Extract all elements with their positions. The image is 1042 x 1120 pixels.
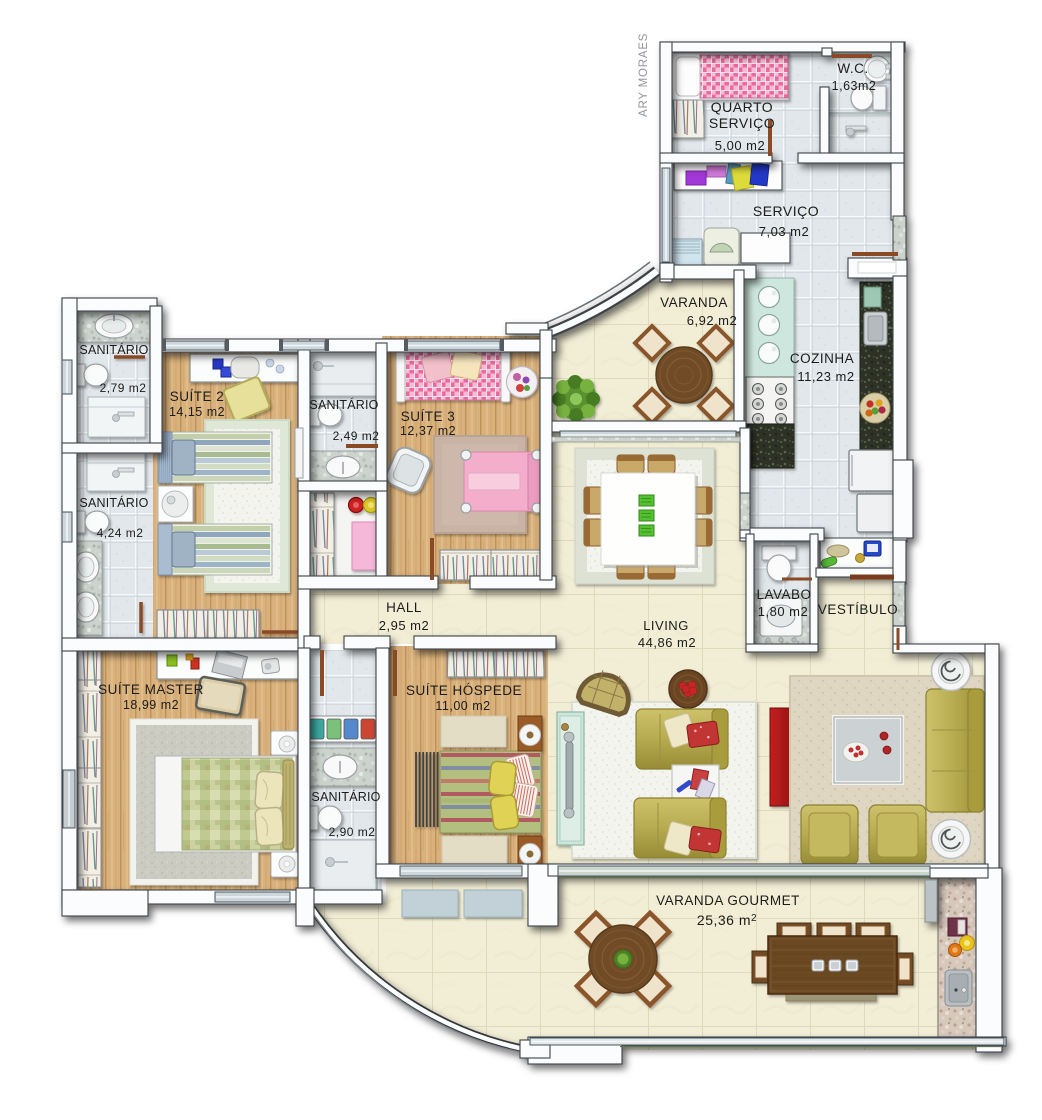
svg-text:QUARTO: QUARTO: [711, 99, 773, 115]
svg-text:VESTÍBULO: VESTÍBULO: [818, 602, 898, 617]
svg-text:25,36 m2: 25,36 m2: [697, 912, 757, 928]
svg-text:1,63m2: 1,63m2: [832, 79, 877, 93]
svg-text:SANITÁRIO: SANITÁRIO: [79, 495, 148, 510]
svg-text:7,03 m2: 7,03 m2: [759, 224, 809, 239]
svg-text:SUÍTE 3: SUÍTE 3: [401, 409, 456, 424]
svg-text:5,00 m2: 5,00 m2: [715, 138, 765, 153]
svg-text:14,15 m2: 14,15 m2: [169, 405, 225, 419]
svg-text:SUÍTE 2: SUÍTE 2: [170, 389, 225, 404]
svg-text:11,00 m2: 11,00 m2: [435, 699, 490, 713]
svg-text:11,23 m2: 11,23 m2: [797, 369, 854, 384]
svg-text:SANITÁRIO: SANITÁRIO: [79, 342, 148, 357]
svg-text:1,80 m2: 1,80 m2: [758, 604, 808, 619]
svg-text:SANITÁRIO: SANITÁRIO: [309, 397, 378, 412]
svg-text:44,86 m2: 44,86 m2: [638, 635, 696, 650]
svg-text:LIVING: LIVING: [643, 618, 689, 633]
svg-text:W.C.: W.C.: [837, 61, 868, 76]
svg-text:2,79 m2: 2,79 m2: [100, 381, 147, 395]
svg-text:VARANDA GOURMET: VARANDA GOURMET: [656, 893, 800, 908]
svg-text:LAVABO: LAVABO: [756, 587, 811, 602]
svg-text:COZINHA: COZINHA: [790, 351, 854, 366]
svg-text:18,99 m2: 18,99 m2: [123, 698, 179, 712]
svg-text:2,90 m2: 2,90 m2: [329, 825, 376, 839]
svg-text:2,49 m2: 2,49 m2: [333, 429, 380, 443]
svg-text:ARY MORAES: ARY MORAES: [638, 33, 650, 117]
svg-text:4,24 m2: 4,24 m2: [97, 526, 144, 540]
svg-text:SUÍTE HÓSPEDE: SUÍTE HÓSPEDE: [406, 683, 522, 698]
svg-text:SUÍTE MASTER: SUÍTE MASTER: [98, 682, 204, 697]
svg-text:VARANDA: VARANDA: [660, 295, 728, 310]
svg-text:HALL: HALL: [386, 600, 422, 615]
svg-text:2,95 m2: 2,95 m2: [379, 618, 429, 633]
svg-text:12,37 m2: 12,37 m2: [400, 424, 456, 438]
svg-text:6,92 m2: 6,92 m2: [687, 313, 737, 328]
svg-text:SERVIÇO: SERVIÇO: [709, 115, 775, 131]
svg-text:SANITÁRIO: SANITÁRIO: [311, 789, 380, 804]
svg-text:SERVIÇO: SERVIÇO: [753, 203, 819, 219]
